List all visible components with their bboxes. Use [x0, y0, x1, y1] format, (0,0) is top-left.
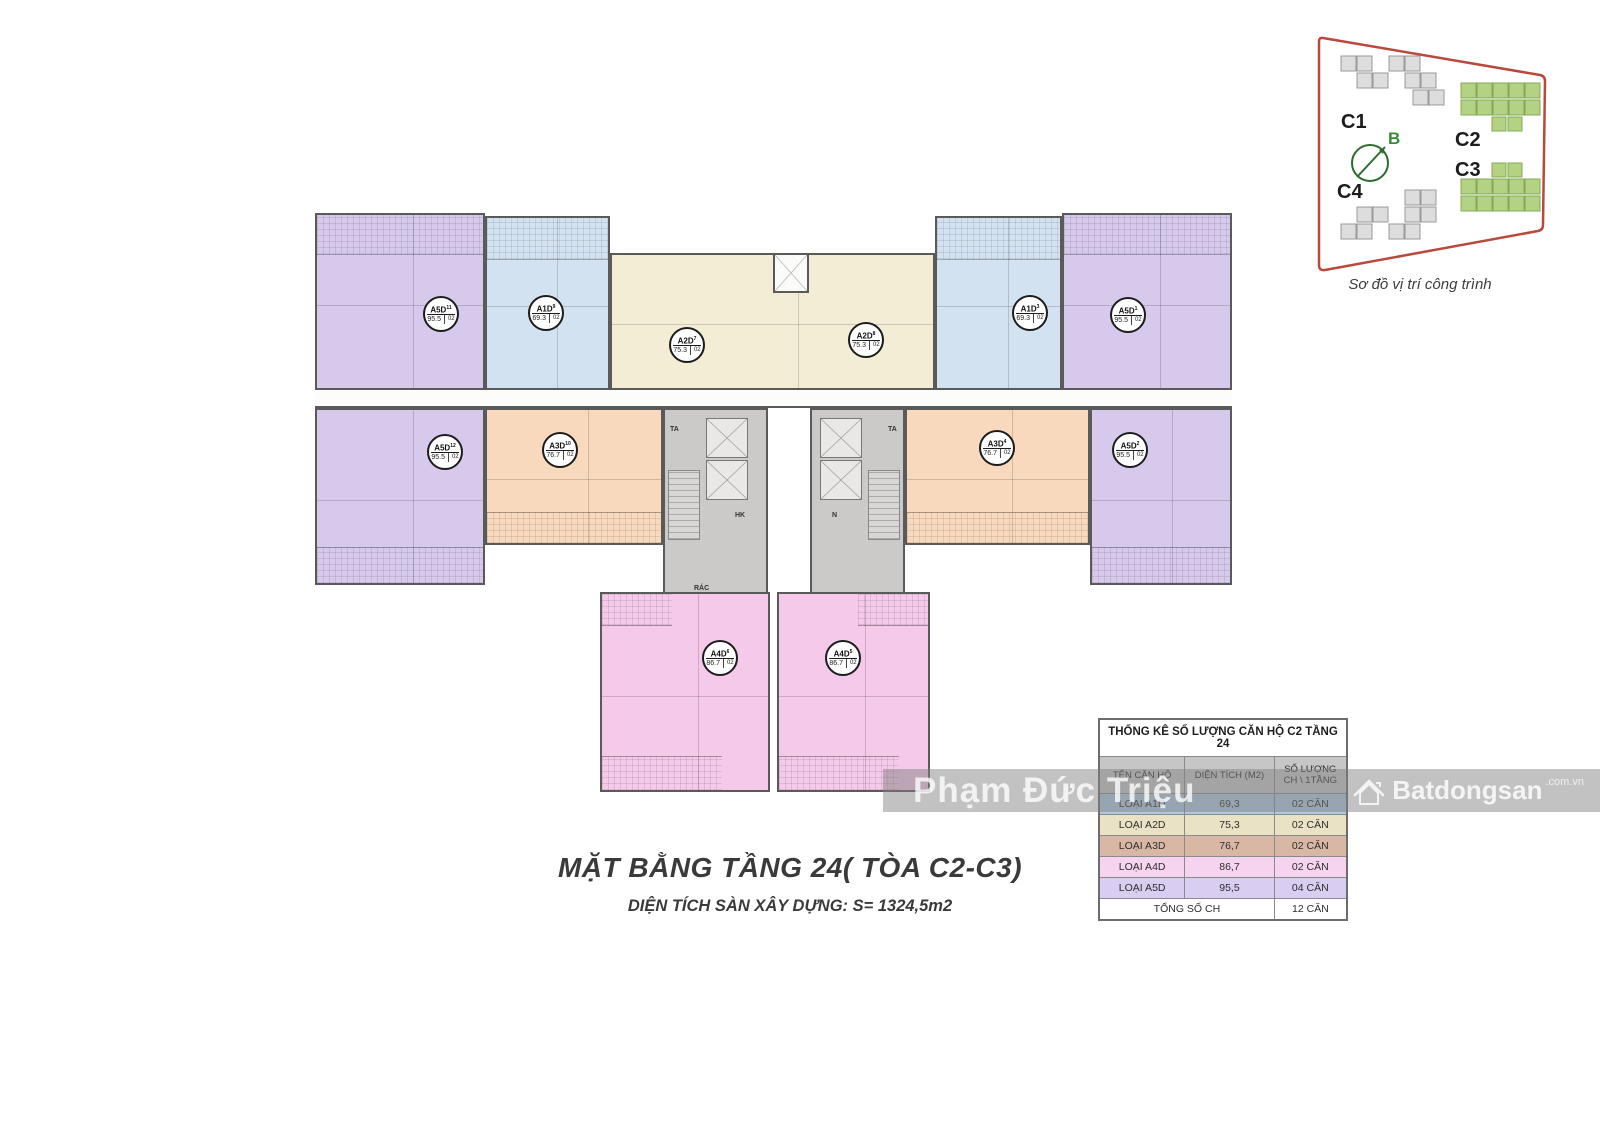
- unit-label-a1d-9: A1D9 69.302: [528, 295, 564, 331]
- elevator-icon: [820, 418, 862, 458]
- unit-label-a3d-4: A3D4 76.702: [979, 430, 1015, 466]
- page-subtitle: DIỆN TÍCH SÀN XÂY DỰNG: S= 1324,5m2: [540, 897, 1040, 916]
- table-row-a4d: LOẠI A4D 86,7 02 CĂN: [1100, 856, 1346, 877]
- unit-label-a2d-8: A2D8 75.302: [848, 322, 884, 358]
- total-label: TỔNG SỐ CH: [1100, 899, 1274, 919]
- table-row-a5d: LOẠI A5D 95,5 04 CĂN: [1100, 877, 1346, 898]
- compass-north-label: B: [1388, 129, 1400, 148]
- building-c1: [1341, 56, 1444, 105]
- total-value: 12 CĂN: [1274, 899, 1346, 919]
- unit-label-a3d-10: A3D10 76.702: [542, 432, 578, 468]
- elevator-icon: [706, 460, 748, 500]
- watermark-brand: Batdongsan: [1392, 775, 1542, 806]
- building-c4-label: C4: [1337, 181, 1363, 203]
- building-c2: [1461, 83, 1540, 131]
- house-icon: [1352, 775, 1386, 807]
- balcony-hatch: [317, 215, 483, 255]
- core-label-ta: TA: [888, 426, 897, 433]
- stats-table-title: THỐNG KÊ SỐ LƯỢNG CĂN HỘ C2 TẦNG 24: [1100, 720, 1346, 756]
- unit-label-a5d-12: A5D12 95.502: [427, 434, 463, 470]
- unit-label-a5d-1: A5D1 95.502: [1110, 297, 1146, 333]
- watermark-text: Phạm Đức Triệu: [913, 771, 1195, 811]
- balcony-hatch: [487, 512, 661, 543]
- stats-table-title-row: THỐNG KÊ SỐ LƯỢNG CĂN HỘ C2 TẦNG 24: [1100, 720, 1346, 756]
- core-label-rac: RÁC: [694, 585, 709, 592]
- unit-label-a2d-7: A2D7 75.302: [669, 327, 705, 363]
- balcony-hatch: [779, 756, 899, 790]
- watermark-band: Phạm Đức Triệu Batdongsan .com.vn: [883, 769, 1600, 812]
- table-total-row: TỔNG SỐ CH 12 CĂN: [1100, 898, 1346, 919]
- elevator-icon: [820, 460, 862, 500]
- table-row-a2d: LOẠI A2D 75,3 02 CĂN: [1100, 814, 1346, 835]
- core-label-n: N: [832, 512, 837, 519]
- balcony-hatch: [602, 594, 672, 626]
- site-map-caption: Sơ đồ vị trí công trình: [1300, 276, 1540, 293]
- elevator-icon: [706, 418, 748, 458]
- unit-label-a1d-3: A1D3 69.302: [1012, 295, 1048, 331]
- central-corridor: [315, 388, 1232, 408]
- stairs-icon: [668, 470, 700, 540]
- balcony-hatch: [907, 512, 1088, 543]
- core-label-ta: TA: [670, 426, 679, 433]
- balcony-hatch: [858, 594, 928, 626]
- unit-label-a4d-5: A4D5 86.702: [825, 640, 861, 676]
- unit-label-a4d-6: A4D6 86.702: [702, 640, 738, 676]
- unit-label-a5d-11: A5D11 95.502: [423, 296, 459, 332]
- balcony-hatch: [1064, 215, 1230, 255]
- building-c1-label: C1: [1341, 111, 1367, 133]
- building-c3-label: C3: [1455, 159, 1481, 181]
- unit-label-a5d-2: A5D2 95.502: [1112, 432, 1148, 468]
- watermark-brand-suffix: .com.vn: [1545, 776, 1584, 788]
- table-row-a3d: LOẠI A3D 76,7 02 CĂN: [1100, 835, 1346, 856]
- balcony-hatch: [317, 547, 483, 583]
- core-label-hk: HK: [735, 512, 745, 519]
- building-c2-label: C2: [1455, 129, 1481, 151]
- site-location-map: C1 C2 C3 C4 B: [1295, 28, 1565, 273]
- stairs-icon: [868, 470, 900, 540]
- watermark-logo: Batdongsan .com.vn: [1352, 775, 1584, 807]
- page-title: MẶT BẰNG TẦNG 24( TÒA C2-C3): [540, 852, 1040, 884]
- stats-table: THỐNG KÊ SỐ LƯỢNG CĂN HỘ C2 TẦNG 24 TÊN …: [1098, 718, 1348, 921]
- balcony-hatch: [1092, 547, 1230, 583]
- balcony-hatch: [937, 218, 1060, 260]
- balcony-hatch: [487, 218, 608, 260]
- compass-icon: [1352, 145, 1388, 181]
- balcony-hatch: [602, 756, 722, 790]
- floor-plan-page: TA TA HK N RÁC A5D11 95.502 A1D9 69.302 …: [0, 0, 1600, 1128]
- elevator-shaft-top: [773, 253, 809, 293]
